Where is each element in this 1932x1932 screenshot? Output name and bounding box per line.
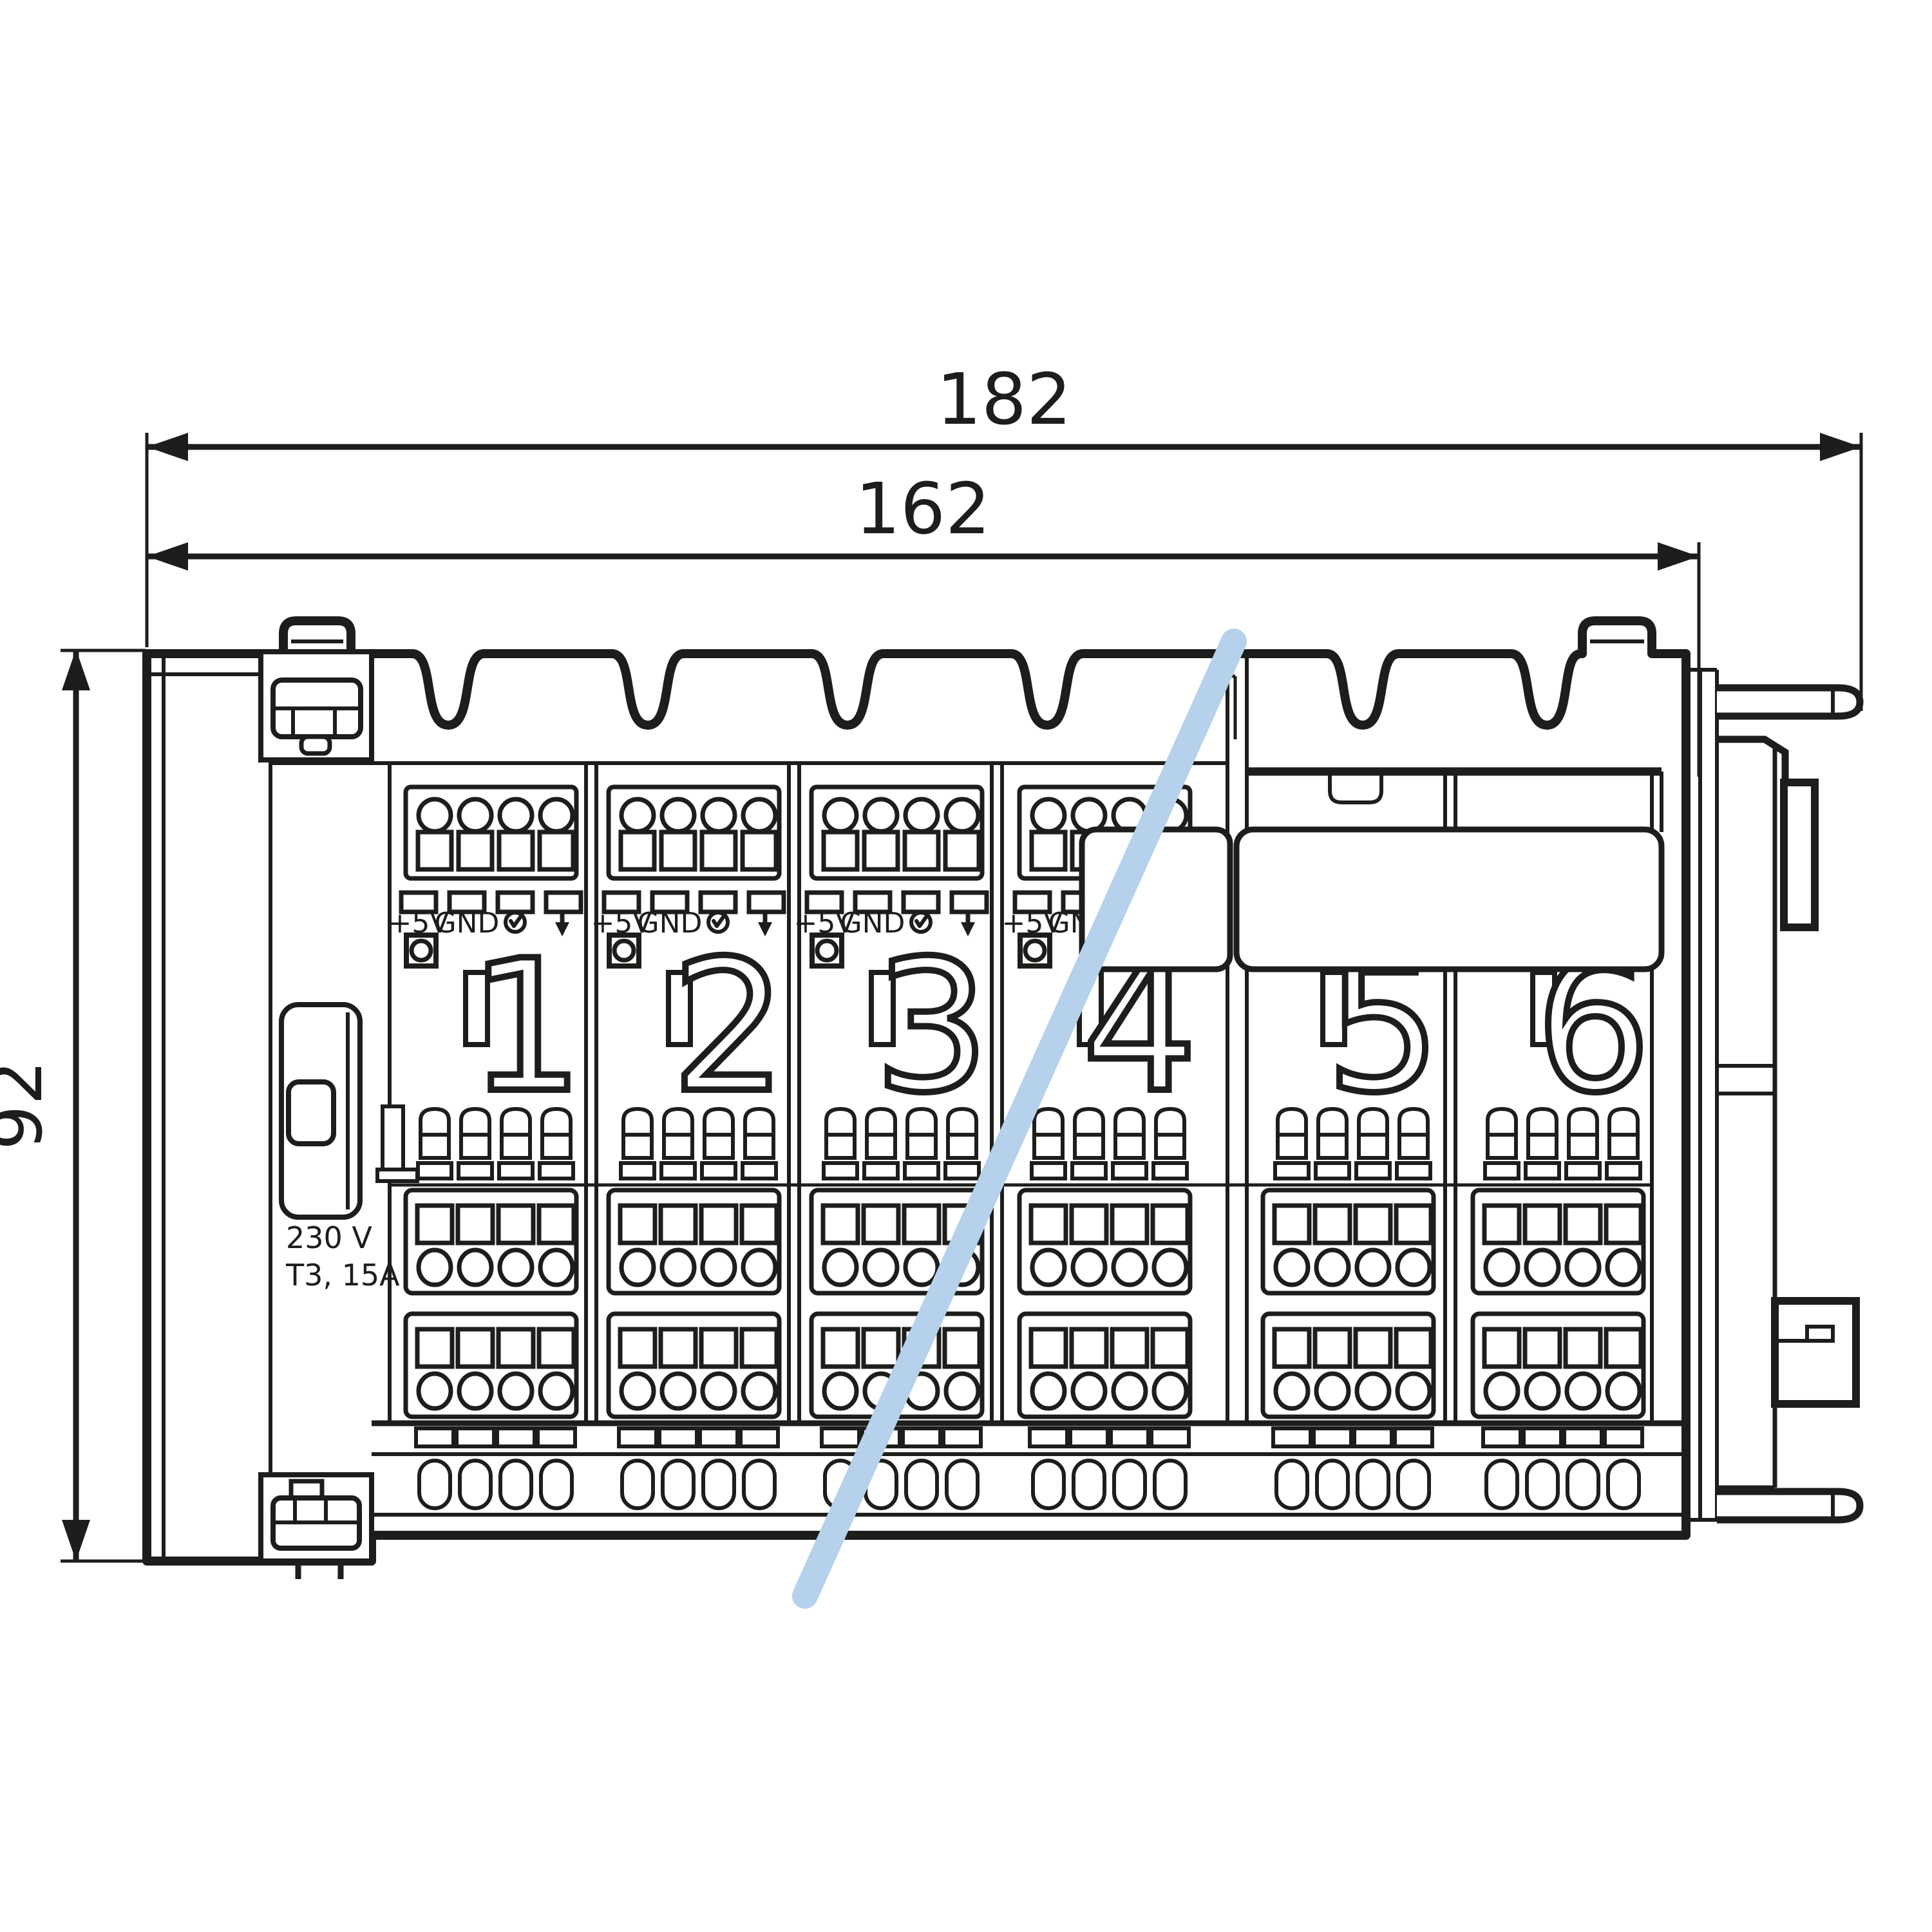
wiring-window-row [1030, 1428, 1189, 1446]
zone-number: 1 [468, 921, 583, 1133]
output-terminal-row-1 [609, 1190, 779, 1293]
technical-drawing: 230 V T3, 15A +5V GND 1 +5V [0, 0, 1932, 1932]
wiring-window-row [416, 1428, 575, 1446]
output-terminal-row-1 [1263, 1190, 1434, 1293]
terminal-block-top [609, 787, 779, 878]
test-button[interactable] [812, 935, 842, 966]
zone-number: 2 [671, 921, 786, 1133]
wiring-window-row [1273, 1428, 1432, 1446]
output-terminal-row-1 [406, 1190, 576, 1293]
bracket-lug-bottom [1775, 1301, 1856, 1404]
zone-number: 3 [874, 921, 989, 1133]
wiring-window-row [1483, 1428, 1642, 1446]
wiring-window-row [619, 1428, 778, 1446]
latch-detail [383, 1106, 403, 1171]
output-terminal-row-1 [1473, 1190, 1643, 1293]
mount-prong-top [1717, 688, 1860, 716]
cover-plate-large [1236, 829, 1662, 969]
dimension-total-width-value: 182 [936, 358, 1072, 440]
output-terminal-row-2 [609, 1314, 779, 1417]
actuator-device: 230 V T3, 15A +5V GND 1 +5V [147, 621, 1860, 1579]
output-terminal-row-2 [1019, 1314, 1190, 1417]
output-terminal-row-2 [1473, 1314, 1643, 1417]
test-button[interactable] [609, 935, 639, 966]
mount-prong-bottom [1717, 1492, 1860, 1520]
test-button[interactable] [1020, 935, 1050, 966]
terminal-block-top [406, 787, 576, 878]
wiring-window-row [822, 1428, 981, 1446]
dimension-height-value: 92 [0, 1060, 58, 1150]
output-terminal-row-2 [406, 1314, 576, 1417]
fuse-voltage-label: 230 V [286, 1220, 372, 1255]
test-button[interactable] [406, 935, 436, 966]
output-terminal-row-2 [1263, 1314, 1434, 1417]
terminal-block-top [811, 787, 982, 878]
din-clip-top [261, 652, 372, 760]
fuse-rating-label: T3, 15A [285, 1258, 400, 1293]
din-clip-bottom [261, 1475, 372, 1561]
bracket-lug-top [1784, 782, 1815, 927]
latch-foot [377, 1170, 417, 1181]
dimension-body-width-value: 162 [855, 468, 990, 550]
output-terminal-row-1 [1019, 1190, 1190, 1293]
